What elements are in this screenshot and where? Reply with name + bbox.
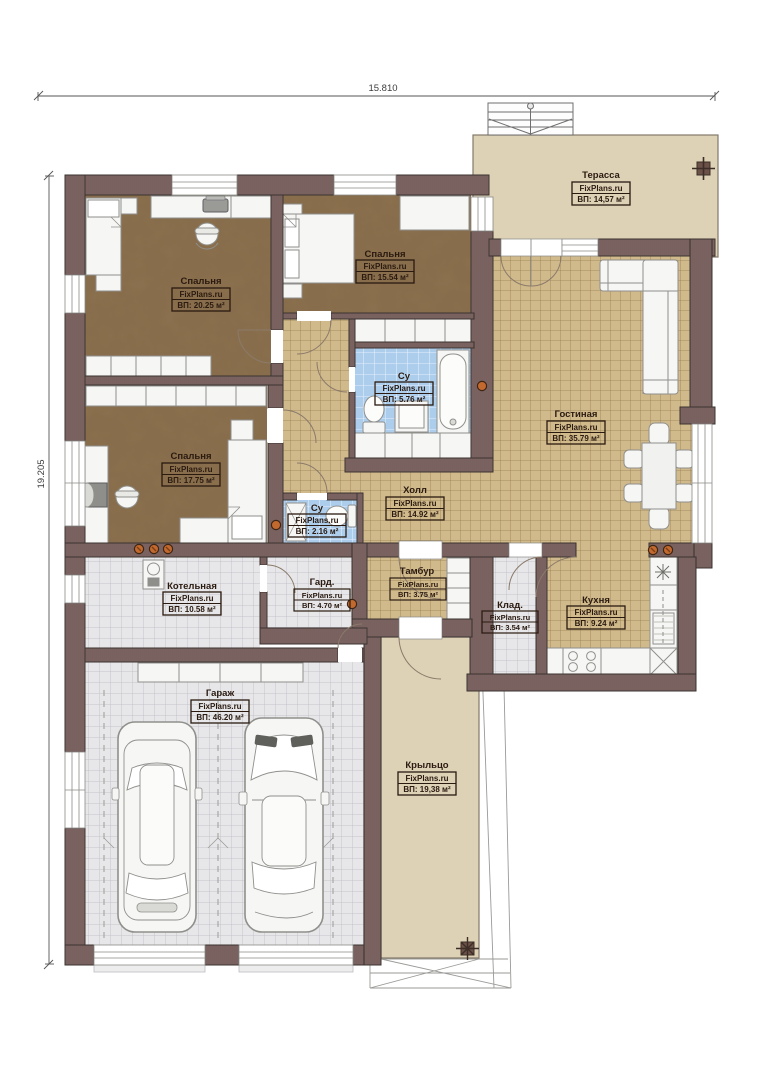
svg-text:15.810: 15.810: [368, 83, 397, 94]
svg-text:FixPlans.ru: FixPlans.ru: [574, 608, 617, 617]
svg-text:FixPlans.ru: FixPlans.ru: [554, 423, 597, 432]
svg-text:ВП: 15.54 м²: ВП: 15.54 м²: [361, 273, 409, 282]
svg-text:ВП: 3.75 м²: ВП: 3.75 м²: [398, 590, 439, 599]
svg-text:Гард.: Гард.: [310, 577, 335, 588]
svg-text:ВП: 14.92 м²: ВП: 14.92 м²: [391, 510, 439, 519]
svg-text:Су: Су: [398, 371, 411, 382]
svg-text:FixPlans.ru: FixPlans.ru: [490, 613, 531, 622]
svg-text:Холл: Холл: [403, 485, 427, 496]
svg-text:Терасса: Терасса: [582, 170, 620, 181]
svg-text:ВП: 14,57 м²: ВП: 14,57 м²: [577, 195, 625, 204]
svg-text:ВП: 9.24 м²: ВП: 9.24 м²: [575, 619, 618, 628]
svg-text:FixPlans.ru: FixPlans.ru: [382, 384, 425, 393]
svg-text:Спальня: Спальня: [180, 276, 221, 287]
svg-text:ВП: 10.58 м²: ВП: 10.58 м²: [168, 605, 216, 614]
svg-text:FixPlans.ru: FixPlans.ru: [198, 702, 241, 711]
svg-text:Гараж: Гараж: [206, 688, 235, 699]
svg-text:ВП: 4.70 м²: ВП: 4.70 м²: [302, 601, 343, 610]
svg-text:Спальня: Спальня: [364, 249, 405, 260]
svg-text:ВП: 35.79 м²: ВП: 35.79 м²: [552, 434, 600, 443]
svg-text:FixPlans.ru: FixPlans.ru: [295, 516, 338, 525]
svg-text:FixPlans.ru: FixPlans.ru: [363, 262, 406, 271]
svg-text:ВП: 3.54 м²: ВП: 3.54 м²: [490, 623, 531, 632]
svg-text:FixPlans.ru: FixPlans.ru: [405, 774, 448, 783]
svg-text:Тамбур: Тамбур: [400, 566, 435, 577]
svg-text:Клад.: Клад.: [497, 600, 523, 611]
svg-text:FixPlans.ru: FixPlans.ru: [179, 290, 222, 299]
svg-text:Су: Су: [311, 503, 324, 514]
svg-text:FixPlans.ru: FixPlans.ru: [398, 580, 439, 589]
svg-text:19.205: 19.205: [36, 459, 47, 488]
svg-text:ВП: 2.16 м²: ВП: 2.16 м²: [296, 527, 339, 536]
svg-text:ВП: 20.25 м²: ВП: 20.25 м²: [177, 301, 225, 310]
svg-text:FixPlans.ru: FixPlans.ru: [169, 465, 212, 474]
svg-text:Крыльцо: Крыльцо: [405, 760, 448, 771]
svg-text:Гостиная: Гостиная: [555, 409, 598, 420]
svg-text:ВП: 17.75 м²: ВП: 17.75 м²: [167, 476, 215, 485]
svg-text:Кухня: Кухня: [582, 595, 610, 606]
svg-text:ВП: 5.76 м²: ВП: 5.76 м²: [383, 395, 426, 404]
svg-text:Котельная: Котельная: [167, 581, 217, 592]
svg-text:FixPlans.ru: FixPlans.ru: [170, 594, 213, 603]
svg-text:Спальня: Спальня: [170, 451, 211, 462]
svg-text:FixPlans.ru: FixPlans.ru: [393, 499, 436, 508]
svg-text:ВП: 19,38 м²: ВП: 19,38 м²: [403, 785, 451, 794]
svg-text:FixPlans.ru: FixPlans.ru: [579, 184, 622, 193]
svg-text:ВП: 46.20 м²: ВП: 46.20 м²: [196, 713, 244, 722]
svg-text:FixPlans.ru: FixPlans.ru: [302, 591, 343, 600]
